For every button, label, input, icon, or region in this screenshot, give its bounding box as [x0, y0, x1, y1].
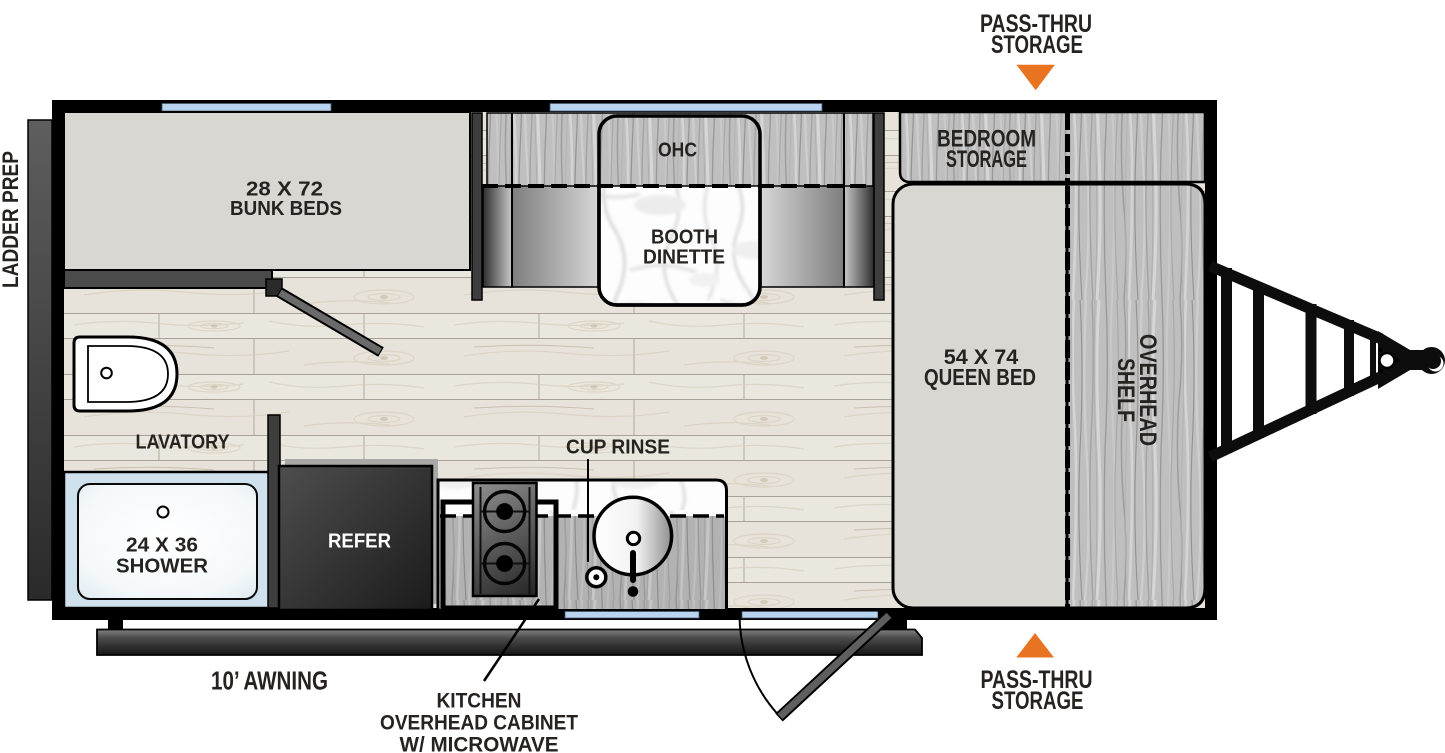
- svg-text:SHELF: SHELF: [1112, 358, 1139, 422]
- svg-text:LADDER PREP: LADDER PREP: [0, 151, 23, 288]
- svg-text:KITCHEN: KITCHEN: [437, 690, 522, 713]
- svg-text:BOOTH: BOOTH: [651, 226, 718, 248]
- svg-text:W/ MICROWAVE: W/ MICROWAVE: [400, 734, 559, 753]
- svg-text:24 X 36: 24 X 36: [126, 534, 198, 556]
- svg-text:STORAGE: STORAGE: [946, 146, 1027, 173]
- svg-text:CUP RINSE: CUP RINSE: [566, 436, 670, 458]
- svg-text:STORAGE: STORAGE: [992, 687, 1084, 715]
- svg-text:BUNK BEDS: BUNK BEDS: [230, 198, 342, 220]
- svg-text:DINETTE: DINETTE: [643, 246, 725, 268]
- svg-text:10’ AWNING: 10’ AWNING: [211, 666, 328, 696]
- svg-text:SHOWER: SHOWER: [116, 555, 209, 577]
- svg-text:REFER: REFER: [328, 530, 392, 552]
- svg-text:QUEEN BED: QUEEN BED: [924, 364, 1036, 390]
- svg-text:STORAGE: STORAGE: [991, 31, 1083, 59]
- svg-text:OVERHEAD CABINET: OVERHEAD CABINET: [380, 712, 578, 735]
- svg-text:LAVATORY: LAVATORY: [136, 431, 231, 453]
- svg-text:OHC: OHC: [658, 139, 697, 161]
